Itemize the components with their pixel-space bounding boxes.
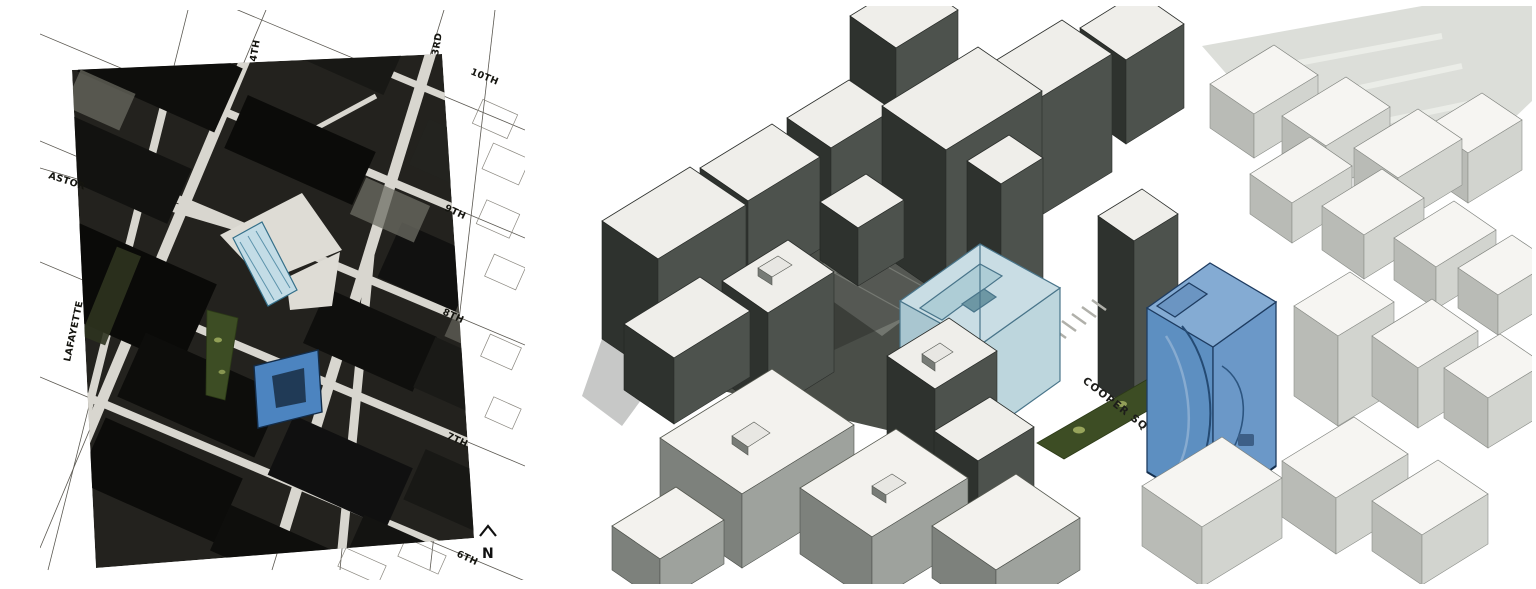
street-label-lafayette: LAFAYETTE	[62, 300, 86, 363]
street-label-6th-st: 6TH	[455, 549, 480, 568]
park-tree	[219, 370, 226, 374]
compass: N	[480, 526, 496, 562]
axonometric-panel: COOPER SQUARE	[582, 6, 1532, 584]
site-window	[1238, 434, 1254, 446]
street-label-3rd-ave: 3RD	[430, 32, 445, 57]
street-label-10th-st: 10TH	[469, 67, 500, 88]
site-plan-panel: ASTOR LAFAYETTE 4TH 3RD 10TH 9TH 8TH 7TH…	[40, 10, 525, 580]
north-arrow-icon	[480, 526, 496, 536]
architecture-figure: ASTOR LAFAYETTE 4TH 3RD 10TH 9TH 8TH 7TH…	[0, 0, 1536, 589]
park-tree	[214, 338, 222, 343]
street-label-4th-ave: 4TH	[248, 39, 263, 63]
compass-north-letter: N	[482, 546, 494, 562]
park-tree	[1073, 427, 1085, 434]
